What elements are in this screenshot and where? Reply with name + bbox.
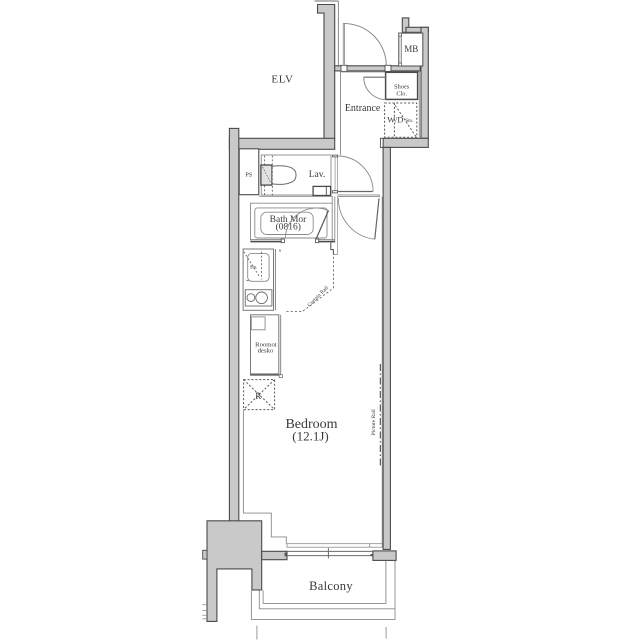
svg-text:ELV: ELV	[271, 74, 293, 86]
svg-text:R: R	[255, 391, 261, 401]
svg-text:desko: desko	[258, 348, 274, 355]
svg-text:Clo.: Clo.	[396, 90, 407, 97]
svg-text:(0816): (0816)	[276, 222, 301, 233]
svg-text:Balcony: Balcony	[309, 579, 353, 593]
svg-text:MB: MB	[404, 44, 418, 54]
svg-text:W/D: W/D	[387, 116, 403, 125]
svg-text:PS: PS	[245, 172, 252, 179]
svg-text:Picture Rail: Picture Rail	[371, 409, 377, 436]
svg-text:Sto.: Sto.	[405, 118, 413, 124]
svg-text:(12.1J): (12.1J)	[292, 429, 328, 444]
svg-text:Lav.: Lav.	[309, 170, 326, 180]
svg-text:Entrance: Entrance	[345, 103, 381, 114]
